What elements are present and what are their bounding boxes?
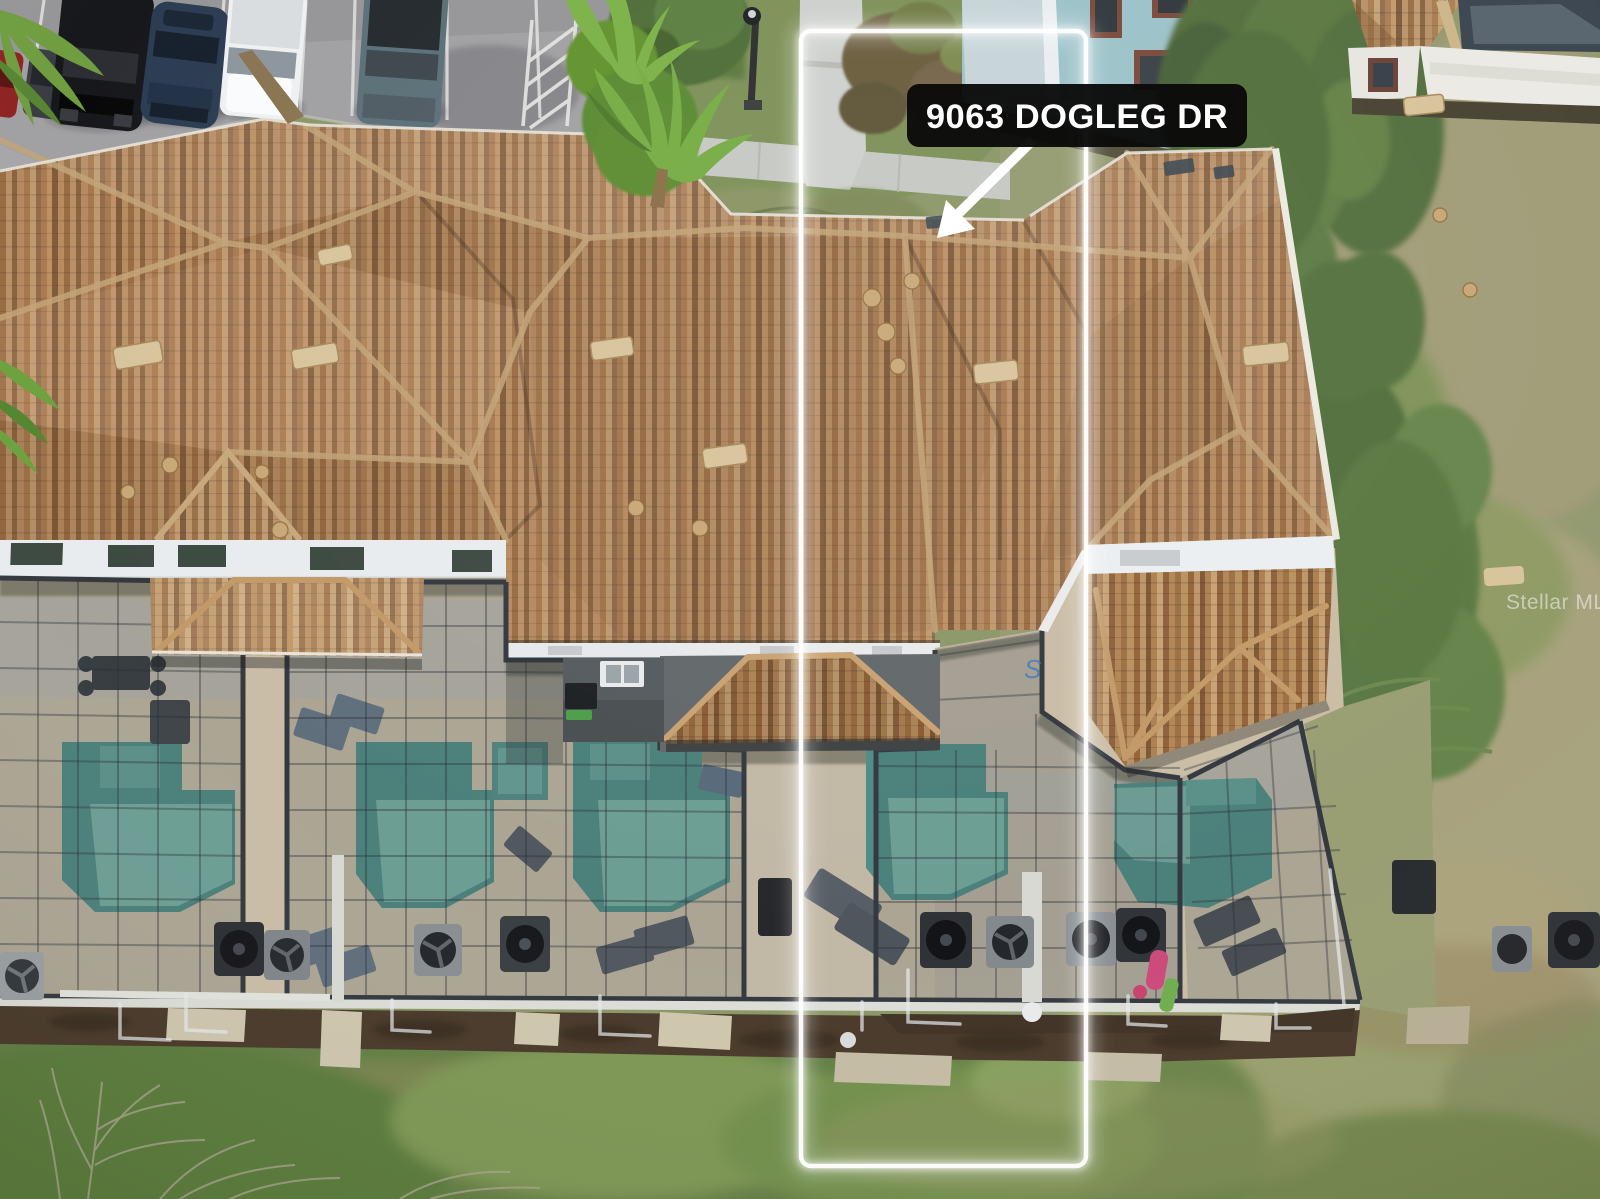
- svg-text:9063 DOGLEG DR: 9063 DOGLEG DR: [926, 98, 1228, 136]
- svg-text:Stellar MLS: Stellar MLS: [1506, 591, 1600, 614]
